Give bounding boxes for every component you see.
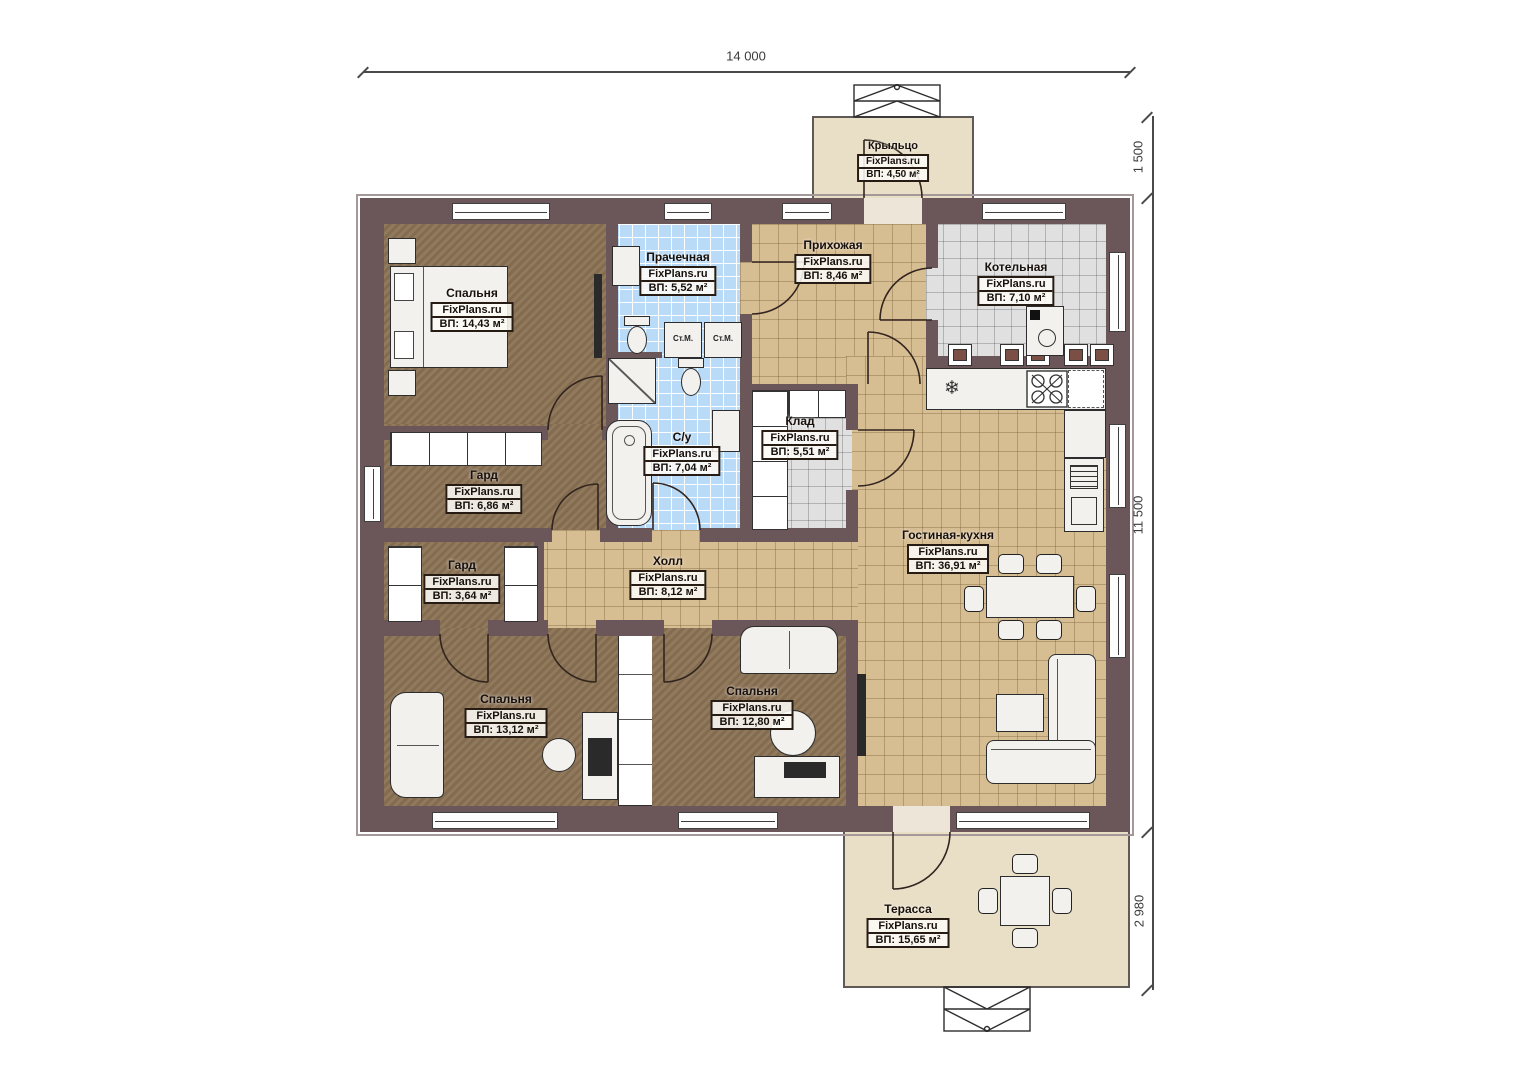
room-title: Спальня xyxy=(465,692,548,706)
wall xyxy=(846,490,858,542)
wall xyxy=(596,620,664,636)
dimension-porch-depth: 1 500 xyxy=(1131,141,1146,174)
room-label-wardrobe-2: Гард FixPlans.ru ВП: 3,64 м² xyxy=(423,558,500,604)
room-info-box: FixPlans.ru ВП: 36,91 м² xyxy=(907,544,990,574)
wall xyxy=(600,528,618,542)
kitchen-wall-cabinet xyxy=(948,344,972,366)
room-title: Терасса xyxy=(867,902,950,916)
shower-tray xyxy=(608,358,656,404)
room-area: ВП: 15,65 м² xyxy=(869,934,948,946)
room-label-porch: Крыльцо FixPlans.ru ВП: 4,50 м² xyxy=(857,140,929,182)
kitchen-wall-cabinet xyxy=(1090,344,1114,366)
room-title: Котельная xyxy=(977,260,1054,274)
room-area: ВП: 3,64 м² xyxy=(425,590,498,602)
room-area: ВП: 7,10 м² xyxy=(979,292,1052,304)
room-label-wardrobe-1: Гард FixPlans.ru ВП: 6,86 м² xyxy=(445,468,522,514)
coffee-table xyxy=(996,694,1044,732)
room-info-box: FixPlans.ru ВП: 4,50 м² xyxy=(857,154,929,182)
room-label-entry-hall: Прихожая FixPlans.ru ВП: 8,46 м² xyxy=(794,238,871,284)
corner-sofa-horizontal xyxy=(986,740,1096,784)
room-title: Холл xyxy=(629,554,706,568)
room-area: ВП: 8,46 м² xyxy=(796,270,869,282)
washer-label: Ст.М. xyxy=(666,334,700,343)
room-info-box: FixPlans.ru ВП: 8,46 м² xyxy=(794,254,871,284)
fridge-icon: ❄ xyxy=(944,379,960,398)
wardrobe-shelves xyxy=(390,432,542,466)
door-arc-bedroom-2 xyxy=(548,634,596,682)
kitchen-counter-return xyxy=(1064,410,1106,458)
dining-chair xyxy=(1076,586,1096,612)
dimension-top-width: 14 000 xyxy=(726,49,766,64)
door-arc-wardrobe-2 xyxy=(440,634,488,682)
room-title: Прачечная xyxy=(639,250,716,264)
bathtub-drain xyxy=(624,435,635,446)
room-brand: FixPlans.ru xyxy=(645,448,718,462)
porch-steps-icon xyxy=(853,84,941,118)
window xyxy=(1109,424,1126,508)
room-info-box: FixPlans.ru ВП: 5,51 м² xyxy=(761,430,838,460)
loveseat-seam xyxy=(789,631,790,669)
window xyxy=(1109,252,1126,332)
terrace-table xyxy=(1000,876,1050,926)
nightstand xyxy=(388,370,416,396)
room-label-bedroom-1: Спальня FixPlans.ru ВП: 14,43 м² xyxy=(431,286,514,332)
window xyxy=(982,203,1066,220)
door-arc-bedroom-1 xyxy=(548,376,602,430)
nightstand xyxy=(388,238,416,264)
room-title: Клад xyxy=(761,414,838,428)
room-area: ВП: 5,52 м² xyxy=(641,282,714,294)
door-arc-storage xyxy=(858,430,914,486)
room-brand: FixPlans.ru xyxy=(713,702,792,716)
computer-monitor xyxy=(588,738,612,776)
door-arc-boiler-room xyxy=(880,268,932,320)
boiler-panel xyxy=(1030,310,1040,320)
boiler-unit xyxy=(1026,306,1064,356)
wall xyxy=(846,384,858,430)
wall xyxy=(618,528,652,542)
room-info-box: FixPlans.ru ВП: 5,52 м² xyxy=(639,266,716,296)
wardrobe-shelves xyxy=(388,546,422,622)
wall xyxy=(740,528,858,542)
terrace-chair xyxy=(1052,888,1072,914)
room-brand: FixPlans.ru xyxy=(425,576,498,590)
room-label-bedroom-3: Спальня FixPlans.ru ВП: 12,80 м² xyxy=(711,684,794,730)
room-area: ВП: 14,43 м² xyxy=(433,318,512,330)
room-info-box: FixPlans.ru ВП: 7,10 м² xyxy=(977,276,1054,306)
dimension-line-porch xyxy=(1152,116,1154,198)
room-brand: FixPlans.ru xyxy=(641,268,714,282)
room-brand: FixPlans.ru xyxy=(909,546,988,560)
dining-chair xyxy=(964,586,984,612)
tv-icon xyxy=(857,674,866,756)
room-area: ВП: 4,50 м² xyxy=(859,169,927,180)
room-brand: FixPlans.ru xyxy=(979,278,1052,292)
room-title: Крыльцо xyxy=(857,140,929,152)
dining-chair xyxy=(998,620,1024,640)
window xyxy=(956,812,1090,829)
vent-grille xyxy=(1070,465,1098,489)
entry-door-opening xyxy=(864,198,922,224)
toilet-tank xyxy=(678,358,704,368)
dining-table xyxy=(986,576,1074,618)
room-brand: FixPlans.ru xyxy=(859,156,927,169)
dimension-terrace-depth: 2 980 xyxy=(1132,895,1147,928)
room-info-box: FixPlans.ru ВП: 7,04 м² xyxy=(643,446,720,476)
room-label-terrace: Терасса FixPlans.ru ВП: 15,65 м² xyxy=(867,902,950,948)
toilet-icon xyxy=(627,326,647,354)
room-label-hall: Холл FixPlans.ru ВП: 8,12 м² xyxy=(629,554,706,600)
stove-icon xyxy=(1026,370,1068,408)
toilet-icon xyxy=(681,368,701,396)
door-arc-bedroom-3 xyxy=(664,634,712,682)
dimension-house-depth: 11 500 xyxy=(1131,496,1146,535)
room-area: ВП: 5,51 м² xyxy=(763,446,836,458)
room-label-bedroom-2: Спальня FixPlans.ru ВП: 13,12 м² xyxy=(465,692,548,738)
blanket-line xyxy=(423,267,424,367)
dimension-line-terrace xyxy=(1152,832,1154,990)
room-label-living-kitchen: Гостиная-кухня FixPlans.ru ВП: 36,91 м² xyxy=(902,528,994,574)
sofa-seam xyxy=(397,745,439,746)
room-brand: FixPlans.ru xyxy=(869,920,948,934)
door-arc-terrace xyxy=(893,832,950,889)
room-area: ВП: 6,86 м² xyxy=(447,500,520,512)
window xyxy=(664,203,712,220)
window xyxy=(432,812,558,829)
wall xyxy=(384,528,552,542)
room-area: ВП: 8,12 м² xyxy=(631,586,704,598)
tv-icon xyxy=(594,274,602,358)
room-info-box: FixPlans.ru ВП: 14,43 м² xyxy=(431,302,514,332)
dimension-tick xyxy=(1141,984,1153,996)
terrace-chair xyxy=(978,888,998,914)
laundry-cabinet xyxy=(612,246,640,286)
window xyxy=(782,203,832,220)
room-info-box: FixPlans.ru ВП: 13,12 м² xyxy=(465,708,548,738)
room-title: С/у xyxy=(643,430,720,444)
kitchen-wall-cabinet xyxy=(1000,344,1024,366)
dimension-line-top xyxy=(363,71,1130,73)
sofa-seam xyxy=(991,749,1091,750)
room-title: Спальня xyxy=(431,286,514,300)
dishwasher xyxy=(1068,370,1104,408)
pillow xyxy=(394,273,414,301)
room-brand: FixPlans.ru xyxy=(467,710,546,724)
boiler-dial xyxy=(1038,329,1056,347)
room-brand: FixPlans.ru xyxy=(433,304,512,318)
toilet-tank xyxy=(624,316,650,326)
terrace-door-opening xyxy=(893,806,950,832)
door-arc-wardrobe-1 xyxy=(552,484,598,530)
room-area: ВП: 36,91 м² xyxy=(909,560,988,572)
room-title: Спальня xyxy=(711,684,794,698)
room-title: Гард xyxy=(423,558,500,572)
room-area: ВП: 12,80 м² xyxy=(713,716,792,728)
window xyxy=(678,812,778,829)
room-label-laundry: Прачечная FixPlans.ru ВП: 5,52 м² xyxy=(639,250,716,296)
wall xyxy=(740,224,752,262)
room-info-box: FixPlans.ru ВП: 12,80 м² xyxy=(711,700,794,730)
wall xyxy=(488,620,548,636)
terrace-chair xyxy=(1012,854,1038,874)
room-brand: FixPlans.ru xyxy=(631,572,704,586)
terrace-steps-icon xyxy=(943,986,1031,1032)
room-brand: FixPlans.ru xyxy=(763,432,836,446)
dining-chair xyxy=(1036,554,1062,574)
wall xyxy=(384,620,440,636)
room-area: ВП: 7,04 м² xyxy=(645,462,718,474)
storage-shelves xyxy=(752,390,788,530)
pillow xyxy=(394,331,414,359)
room-label-storage: Клад FixPlans.ru ВП: 5,51 м² xyxy=(761,414,838,460)
room-label-boiler-room: Котельная FixPlans.ru ВП: 7,10 м² xyxy=(977,260,1054,306)
washer-label: Ст.М. xyxy=(706,334,740,343)
wardrobe-shelves xyxy=(504,546,538,622)
window xyxy=(364,466,381,522)
wall xyxy=(926,224,938,268)
tall-cabinet xyxy=(1064,458,1104,532)
room-title: Гард xyxy=(445,468,522,482)
office-chair xyxy=(542,738,576,772)
cabinet-door xyxy=(1071,497,1097,525)
terrace-chair xyxy=(1012,928,1038,948)
room-brand: FixPlans.ru xyxy=(447,486,520,500)
door-arc-entry-to-living xyxy=(868,332,920,384)
room-label-bathroom: С/у FixPlans.ru ВП: 7,04 м² xyxy=(643,430,720,476)
room-info-box: FixPlans.ru ВП: 8,12 м² xyxy=(629,570,706,600)
room-info-box: FixPlans.ru ВП: 15,65 м² xyxy=(867,918,950,948)
sofa xyxy=(390,692,444,798)
room-info-box: FixPlans.ru ВП: 6,86 м² xyxy=(445,484,522,514)
room-title: Прихожая xyxy=(794,238,871,252)
dining-chair xyxy=(1036,620,1062,640)
door-arc-bathroom xyxy=(653,483,700,530)
room-brand: FixPlans.ru xyxy=(796,256,869,270)
dimension-line-house xyxy=(1152,198,1154,832)
kitchen-wall-cabinet xyxy=(1064,344,1088,366)
floor-plan: Ст.М. Ст.М. ❄ xyxy=(0,0,1528,1080)
room-info-box: FixPlans.ru ВП: 3,64 м² xyxy=(423,574,500,604)
room-area: ВП: 13,12 м² xyxy=(467,724,546,736)
dining-chair xyxy=(998,554,1024,574)
window xyxy=(452,203,550,220)
wall xyxy=(926,320,938,362)
window xyxy=(1109,574,1126,658)
room-title: Гостиная-кухня xyxy=(902,528,994,542)
computer-monitor xyxy=(784,762,826,778)
loveseat xyxy=(740,626,838,674)
